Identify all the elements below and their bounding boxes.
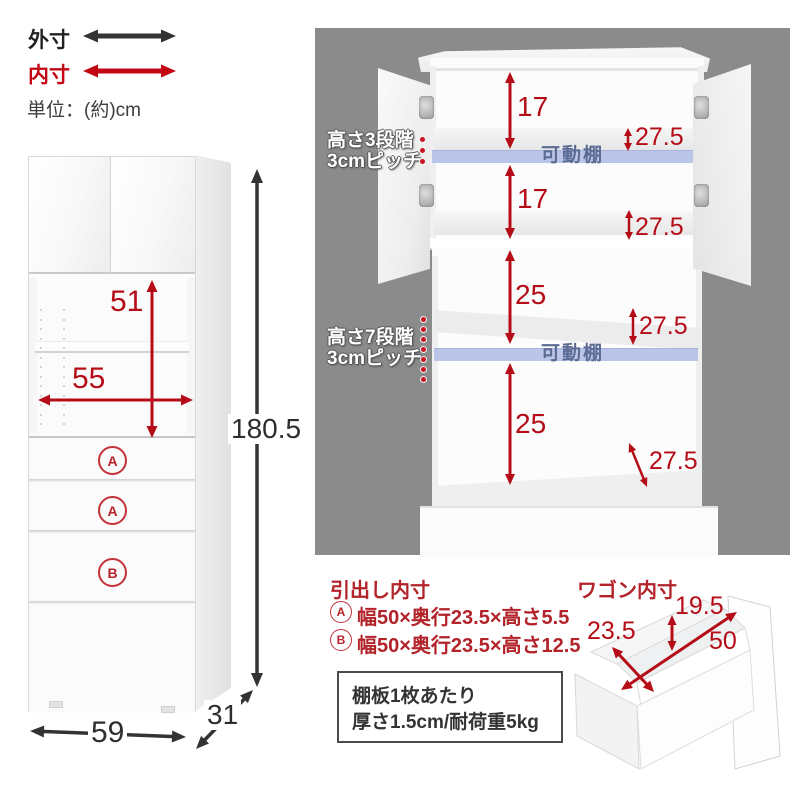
spec-a-badge: A [330, 601, 352, 623]
dim-depth-1: 27.5 [635, 125, 684, 150]
drawer-specs-title: 引出し内寸 [330, 574, 430, 603]
pitch-dot-lower [421, 377, 426, 382]
drawer-divider [29, 479, 195, 482]
hinge-icon [694, 184, 709, 207]
interior-ceiling-shadow [430, 68, 704, 71]
pinhole-column-2 [63, 309, 65, 311]
pinhole-column-2 [63, 319, 65, 321]
dim-depth-4: 27.5 [649, 449, 698, 474]
lower-pitch-line1: 高さ7段階 [327, 327, 422, 348]
cabinet-door-right [111, 157, 195, 274]
dim-wagon-depth: 23.5 [587, 619, 636, 644]
drawer-a2-letter: A [107, 503, 117, 519]
dim-shelf-height: 51 [110, 287, 143, 317]
pinhole-column-1 [40, 385, 42, 387]
pitch-dot-lower [421, 337, 426, 342]
pinhole-column-1 [40, 319, 42, 321]
cabinet-base [420, 506, 718, 557]
hinge-icon [419, 184, 434, 207]
pinhole-column-2 [63, 328, 65, 330]
drawer-a2-badge: A [98, 496, 127, 525]
upper-pitch-label: 高さ3段階 3cmピッチ [327, 130, 422, 172]
interior-floor [434, 470, 700, 508]
legend-outer-arrow [83, 30, 176, 43]
dim-wagon-height: 19.5 [675, 594, 724, 619]
drawer-b-badge: B [98, 558, 127, 587]
cabinet-front-view [28, 156, 196, 712]
dim-upper-gap-2: 17 [517, 185, 548, 213]
pinhole-column-2 [63, 423, 65, 425]
cabinet-foot [161, 706, 175, 713]
upper-pitch-line2: 3cmピッチ [327, 151, 422, 172]
pinhole-column-1 [40, 357, 42, 359]
drawer-a1-letter: A [107, 453, 117, 469]
spec-b-badge: B [330, 629, 352, 651]
lower-pitch-label: 高さ7段階 3cmピッチ [327, 327, 422, 369]
drawer-divider [29, 601, 195, 604]
spec-b-text: 幅50×奥行23.5×高さ12.5 [357, 629, 580, 658]
movable-shelf-text-upper: 可動棚 [541, 146, 604, 165]
lower-pitch-line2: 3cmピッチ [327, 348, 422, 369]
legend-outer-label: 外寸 [28, 24, 70, 54]
cabinet-side-panel [196, 154, 231, 712]
upper-pitch-line1: 高さ3段階 [327, 130, 422, 151]
dim-total-height: 180.5 [228, 414, 304, 444]
pitch-dot-lower [421, 317, 426, 322]
spec-a-text: 幅50×奥行23.5×高さ5.5 [357, 601, 569, 630]
drawer-b-letter: B [107, 565, 117, 581]
pitch-dot-lower [421, 347, 426, 352]
unit-label: 単位：(約)cm [27, 95, 141, 122]
dim-depth: 31 [204, 700, 241, 730]
wagon-back-panel [575, 674, 639, 769]
legend-inner-label: 内寸 [28, 59, 70, 89]
hinge-icon [694, 96, 709, 119]
shelf-note-box: 棚板1枚あたり 厚さ1.5cm/耐荷重5kg [337, 671, 563, 743]
dim-upper-gap-1: 17 [517, 93, 548, 121]
drawer-divider [29, 530, 195, 533]
dim-depth-2: 27.5 [635, 215, 684, 240]
cabinet-door-left [29, 157, 111, 274]
pitch-dot-upper [420, 148, 425, 153]
pinhole-column-2 [63, 338, 65, 340]
pitch-dot-lower [421, 357, 426, 362]
dim-width: 59 [88, 717, 127, 749]
spec-a-letter: A [337, 605, 346, 619]
pinhole-column-2 [63, 347, 65, 349]
pinhole-column-2 [63, 385, 65, 387]
pinhole-column-1 [40, 414, 42, 416]
drawer-a1-badge: A [98, 446, 127, 475]
pinhole-column-1 [40, 423, 42, 425]
dim-shelf-width: 55 [72, 364, 105, 394]
pinhole-column-2 [63, 366, 65, 368]
shelf-note-line1: 棚板1枚あたり [352, 684, 561, 710]
spec-b-letter: B [337, 633, 346, 647]
shelf-note-line2: 厚さ1.5cm/耐荷重5kg [352, 710, 561, 736]
movable-shelf-text-lower: 可動棚 [541, 344, 604, 363]
product-dimension-diagram: 外寸 内寸 単位：(約)cm A A B 51 55 180.5 59 31 [0, 0, 800, 800]
legend-inner-arrow [83, 65, 176, 78]
pinhole-column-1 [40, 338, 42, 340]
niche-shelf [35, 341, 189, 353]
pinhole-column-2 [63, 395, 65, 397]
dim-lower-gap-1: 25 [515, 281, 546, 309]
pinhole-column-2 [63, 404, 65, 406]
pinhole-column-2 [63, 414, 65, 416]
pinhole-column-1 [40, 328, 42, 330]
hinge-icon [419, 96, 434, 119]
pinhole-column-1 [40, 404, 42, 406]
cabinet-foot [49, 701, 63, 708]
pitch-dot-lower [421, 367, 426, 372]
dim-lower-gap-2: 25 [515, 410, 546, 438]
pinhole-column-1 [40, 376, 42, 378]
pinhole-column-1 [40, 347, 42, 349]
pinhole-column-1 [40, 395, 42, 397]
pinhole-column-2 [63, 376, 65, 378]
dim-wagon-width: 50 [709, 629, 737, 654]
pinhole-column-2 [63, 357, 65, 359]
pitch-dot-upper [420, 159, 425, 164]
dim-depth-3: 27.5 [639, 314, 688, 339]
pinhole-column-1 [40, 366, 42, 368]
pitch-dot-lower [421, 327, 426, 332]
pitch-dot-upper [420, 137, 425, 142]
open-view-photo [315, 28, 790, 555]
interior-wall [432, 256, 438, 506]
pinhole-column-1 [40, 309, 42, 311]
